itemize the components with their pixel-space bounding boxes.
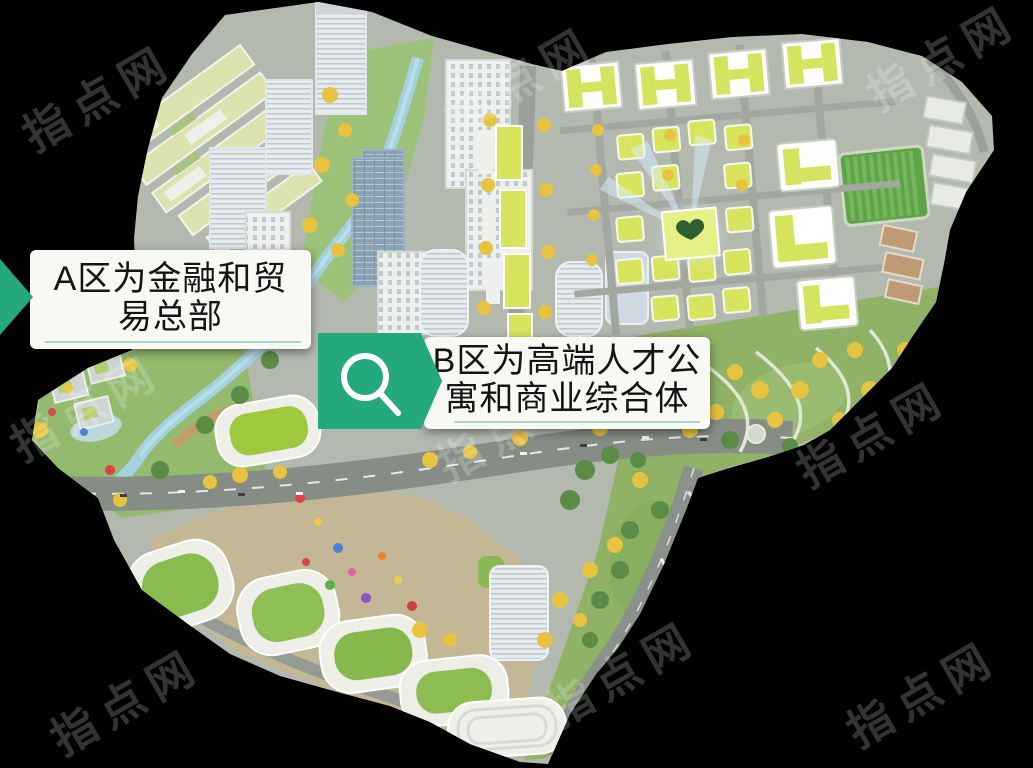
annotation-area-b-box: B区为高端人才公 寓和商业综合体 xyxy=(424,337,710,429)
scene: 指点网 指点网 指点网 指点网 指点网 指点网 指点网 指点网 指点网 A区为金… xyxy=(0,0,1033,768)
area-a-text-line2: 易总部 xyxy=(30,298,311,336)
area-b-text-line2: 寓和商业综合体 xyxy=(424,380,710,418)
area-b-underline xyxy=(454,421,700,423)
area-b-text-line1: B区为高端人才公 xyxy=(424,342,710,380)
annotation-area-a-box: A区为金融和贸 易总部 xyxy=(30,250,311,349)
area-a-text-line1: A区为金融和贸 xyxy=(30,260,311,298)
magnifier-icon xyxy=(318,333,442,429)
area-a-underline xyxy=(45,341,301,343)
